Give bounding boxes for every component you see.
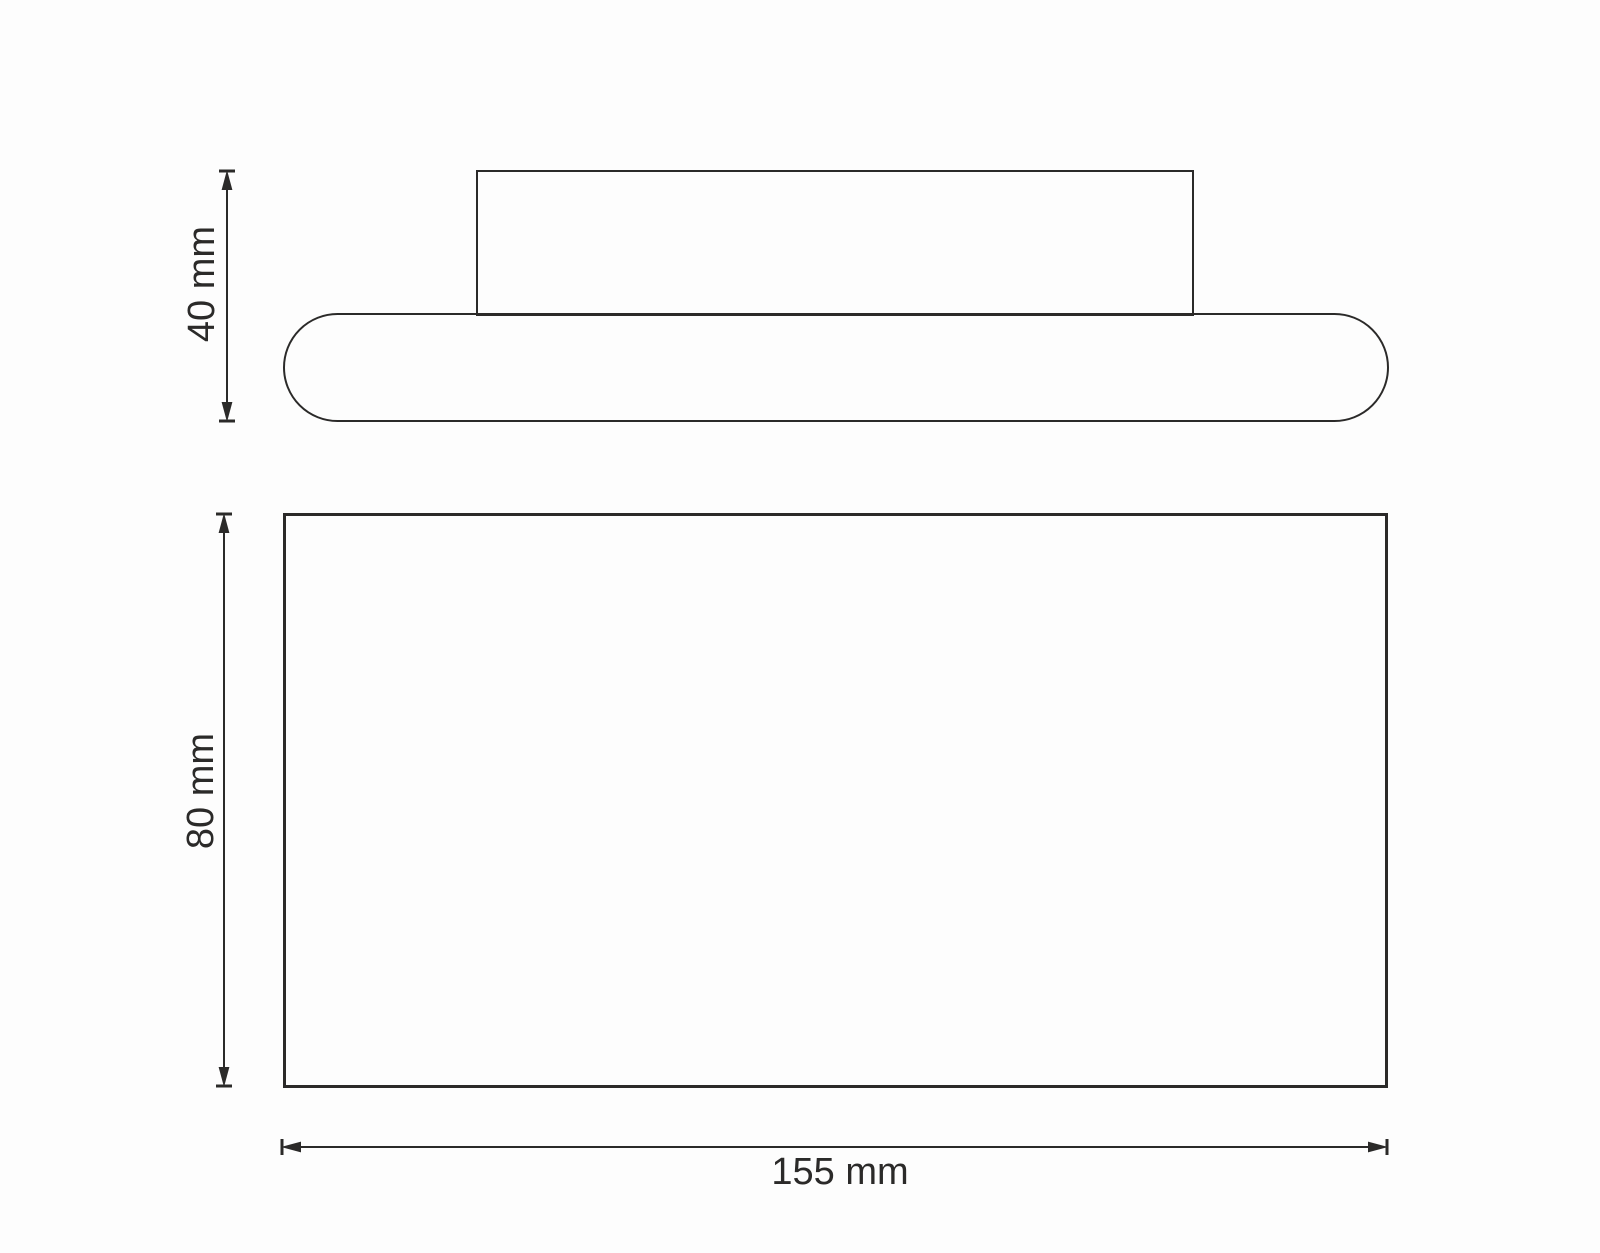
technical-drawing-canvas: 40 mm 80 mm 155 mm (0, 0, 1600, 1253)
dim-label-front-width: 155 mm (730, 1150, 950, 1194)
dim-40-arrowhead-bottom (222, 402, 233, 422)
front-view-body-outline (283, 513, 1388, 1088)
dim-155-arrowhead-left (281, 1142, 301, 1153)
dim-80-arrowhead-top (219, 513, 230, 533)
dim-label-front-height: 80 mm (179, 681, 223, 901)
side-view-mount-rect-outline (476, 170, 1194, 316)
side-view-body-outline (283, 313, 1389, 422)
dim-80-arrowhead-bottom (219, 1067, 230, 1087)
dim-155-arrowhead-right (1368, 1142, 1388, 1153)
dim-label-side-height: 40 mm (180, 174, 224, 394)
